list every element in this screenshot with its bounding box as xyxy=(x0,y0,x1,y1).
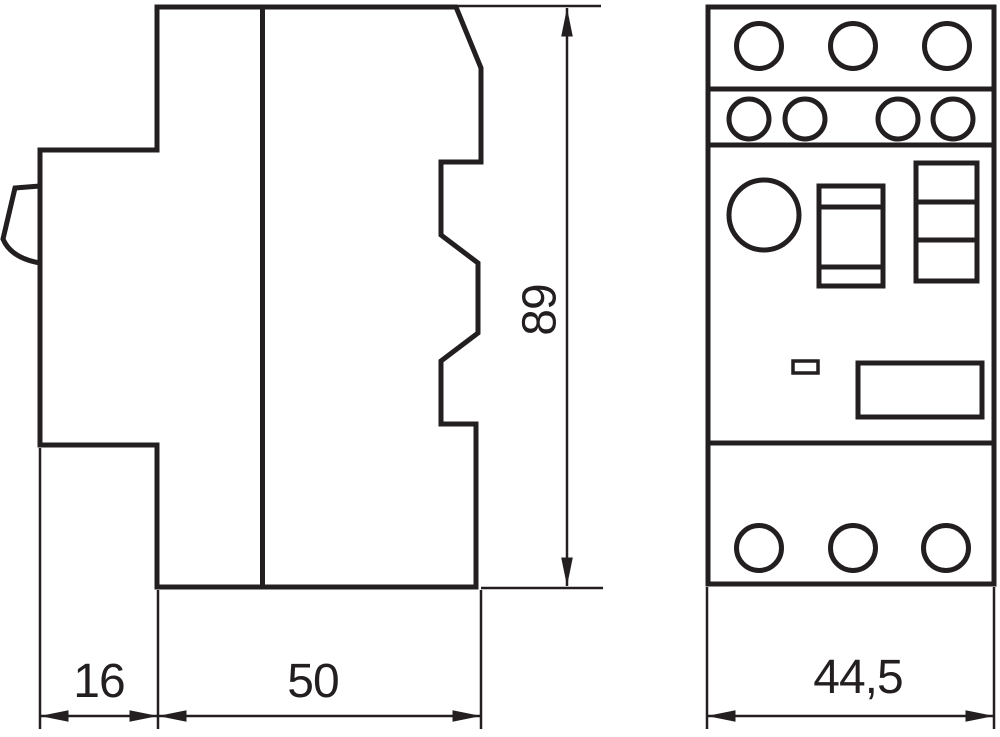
side-view xyxy=(3,7,481,587)
dim-label-front-width: 44,5 xyxy=(813,651,902,704)
dim-label-body-depth: 50 xyxy=(287,655,338,708)
din-clip-latch xyxy=(3,186,40,263)
front-view-body xyxy=(708,7,994,584)
circuit-breaker-dimension-drawing: 89 16 50 44,5 xyxy=(0,0,1000,737)
front-view xyxy=(706,7,996,584)
dimensional-drawing-canvas: 89 16 50 44,5 xyxy=(0,0,1000,737)
dim-label-height: 89 xyxy=(514,284,567,335)
dim-label-clip-depth: 16 xyxy=(73,655,124,708)
